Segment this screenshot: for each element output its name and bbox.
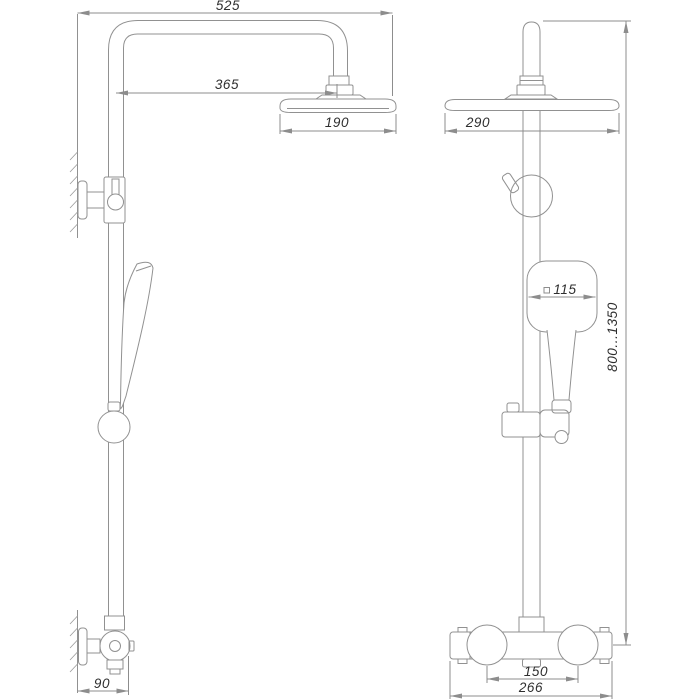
riser-column-front bbox=[523, 111, 540, 618]
mixer-handle-right bbox=[558, 625, 598, 665]
mixer-handle-left bbox=[467, 625, 507, 665]
side-view: 525 365 190 90 bbox=[70, 0, 396, 695]
rain-head-connector-side bbox=[316, 76, 366, 99]
upper-wall-bracket-side bbox=[78, 177, 125, 223]
dim-handle-spacing-label: 150 bbox=[524, 664, 548, 679]
dim-head-depth: 190 bbox=[280, 114, 396, 134]
drawing-canvas: 525 365 190 90 bbox=[0, 0, 700, 700]
wall-surface-top bbox=[70, 14, 78, 238]
hand-shower-side bbox=[120, 262, 153, 408]
dim-height-range-label: 800...1350 bbox=[605, 302, 620, 372]
diverter-valve-side bbox=[79, 616, 135, 674]
rain-head-side bbox=[280, 99, 396, 113]
dim-arm-reach-label: 365 bbox=[215, 77, 239, 92]
dim-head-width: 290 bbox=[445, 113, 619, 134]
dim-head-width-label: 290 bbox=[465, 115, 490, 130]
slider-knob-side bbox=[98, 402, 130, 443]
upper-wall-bracket-front bbox=[501, 172, 552, 217]
hand-shower-front: 115 bbox=[527, 261, 597, 413]
dim-wall-offset-label: 90 bbox=[94, 676, 110, 691]
dim-hand-shower-width-label: 115 bbox=[553, 282, 576, 297]
dim-mixer-width-label: 266 bbox=[518, 680, 543, 695]
dim-head-depth-label: 190 bbox=[325, 115, 349, 130]
wall-surface-bottom bbox=[70, 610, 78, 693]
mixer-front bbox=[450, 617, 612, 667]
shower-system-drawing: 525 365 190 90 bbox=[0, 0, 700, 700]
rain-head-front bbox=[445, 100, 619, 111]
dim-arm-reach: 365 bbox=[116, 77, 337, 98]
front-view: 115 290 bbox=[445, 21, 631, 699]
dim-overall-width-label: 525 bbox=[216, 0, 240, 13]
top-pipe-front bbox=[505, 22, 557, 99]
